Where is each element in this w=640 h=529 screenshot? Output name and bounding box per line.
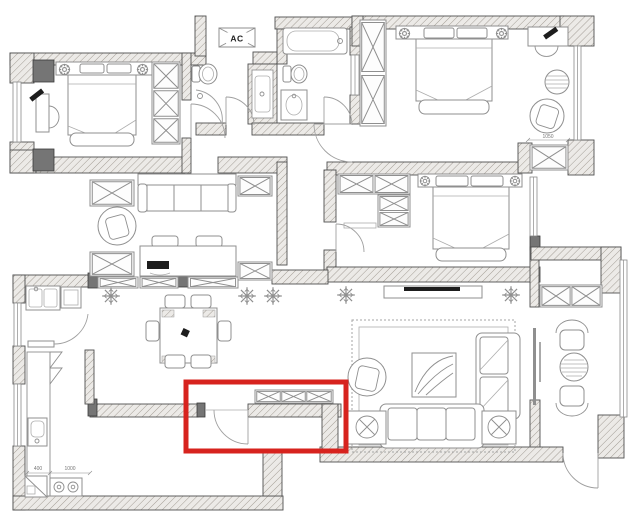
bed-foot-roll	[419, 100, 489, 114]
lamp-icon	[496, 28, 507, 39]
ac-label: AC	[230, 34, 243, 44]
corner-shelf	[50, 352, 62, 384]
family-room	[90, 174, 272, 288]
shower-screen	[196, 90, 222, 124]
column	[33, 60, 54, 82]
sofa-back	[138, 174, 236, 185]
bathroom-1	[192, 64, 222, 124]
pillow	[424, 28, 454, 38]
dimension-label: 1000	[64, 466, 75, 472]
sofa-arm	[138, 184, 147, 212]
floor-plan-page: AC 1050	[0, 0, 640, 529]
sofa-cushion	[174, 185, 201, 211]
lamp-icon	[137, 64, 148, 75]
screen-partition	[539, 342, 541, 382]
plant-icon	[264, 287, 282, 305]
plant-icon	[238, 287, 256, 305]
x-cell	[362, 76, 385, 124]
tv	[404, 287, 460, 291]
lamp-icon	[510, 176, 520, 186]
round-table	[560, 353, 588, 381]
plant-icon	[502, 286, 520, 304]
balcony	[540, 285, 602, 416]
x-cell	[307, 391, 331, 401]
x-cell	[154, 64, 178, 88]
bedroom-2	[338, 174, 522, 261]
x-cell	[542, 287, 570, 306]
shower-head	[198, 94, 203, 99]
desk-chair	[49, 106, 59, 128]
bathroom-2	[252, 28, 347, 120]
chair	[560, 386, 584, 406]
x-cell	[380, 196, 408, 210]
dimension-label: 1050	[542, 134, 553, 140]
floor-plan: AC 1050	[0, 0, 640, 529]
chair	[191, 355, 211, 368]
chair	[165, 295, 185, 308]
chair	[152, 236, 178, 247]
headboard	[418, 174, 522, 187]
chair	[560, 330, 584, 350]
column	[197, 403, 205, 417]
door-entry-hall	[214, 410, 248, 444]
bed-foot-roll	[436, 248, 506, 261]
master-bedroom: 1050	[360, 20, 570, 170]
door-bath2	[324, 97, 352, 125]
x-cell	[92, 182, 131, 205]
lamp-icon	[59, 64, 70, 75]
pillow	[457, 28, 487, 38]
x-cell	[92, 254, 131, 275]
chair	[218, 321, 231, 341]
pillow	[436, 176, 468, 186]
x-cell	[240, 263, 270, 278]
x-cell	[257, 391, 281, 401]
lamp-icon	[420, 176, 430, 186]
sink-counter	[26, 286, 60, 310]
sofa-cushion	[147, 185, 174, 211]
armchair	[98, 207, 136, 245]
living-room	[337, 286, 541, 452]
dining-room	[102, 287, 282, 368]
pillow	[107, 64, 131, 73]
x-cell	[340, 176, 373, 193]
pillow	[471, 176, 503, 186]
desk	[36, 94, 49, 132]
plant-icon	[102, 287, 120, 305]
chair	[165, 355, 185, 368]
bed-foot-roll	[70, 133, 134, 146]
screen-partition	[533, 328, 536, 405]
x-cell	[572, 287, 600, 306]
toilet-tank	[283, 66, 291, 82]
kitchen: 400 1000	[25, 286, 92, 497]
stove	[50, 478, 82, 496]
x-cell	[375, 176, 408, 193]
sofa-cushion	[388, 408, 417, 440]
door-kitchen-leaf	[28, 341, 54, 347]
plant-icon	[337, 286, 355, 304]
x-cell	[154, 91, 178, 116]
sofa-cushion	[417, 408, 446, 440]
column	[33, 149, 54, 171]
x-cell	[240, 178, 270, 195]
door-main-entry	[563, 453, 598, 488]
x-cell	[154, 119, 178, 143]
desk-chair	[535, 46, 558, 56]
pillow	[80, 64, 104, 73]
chair	[191, 295, 211, 308]
lamp-icon	[399, 28, 410, 39]
x-cell	[100, 278, 136, 286]
x-cell	[362, 23, 385, 72]
x-cell	[142, 278, 176, 286]
ac-closet: AC	[219, 28, 255, 47]
chair	[196, 236, 222, 247]
door-kitchen	[54, 314, 88, 344]
sofa-cushion	[446, 408, 475, 440]
sofa-cushion	[201, 185, 228, 211]
tv-on-table	[147, 261, 169, 269]
dimension-label: 400	[34, 466, 43, 472]
x-cell	[380, 212, 408, 225]
x-cell	[190, 278, 235, 286]
chair	[146, 321, 159, 341]
x-cell	[532, 147, 566, 169]
round-table	[545, 70, 569, 94]
x-cell	[282, 391, 306, 401]
